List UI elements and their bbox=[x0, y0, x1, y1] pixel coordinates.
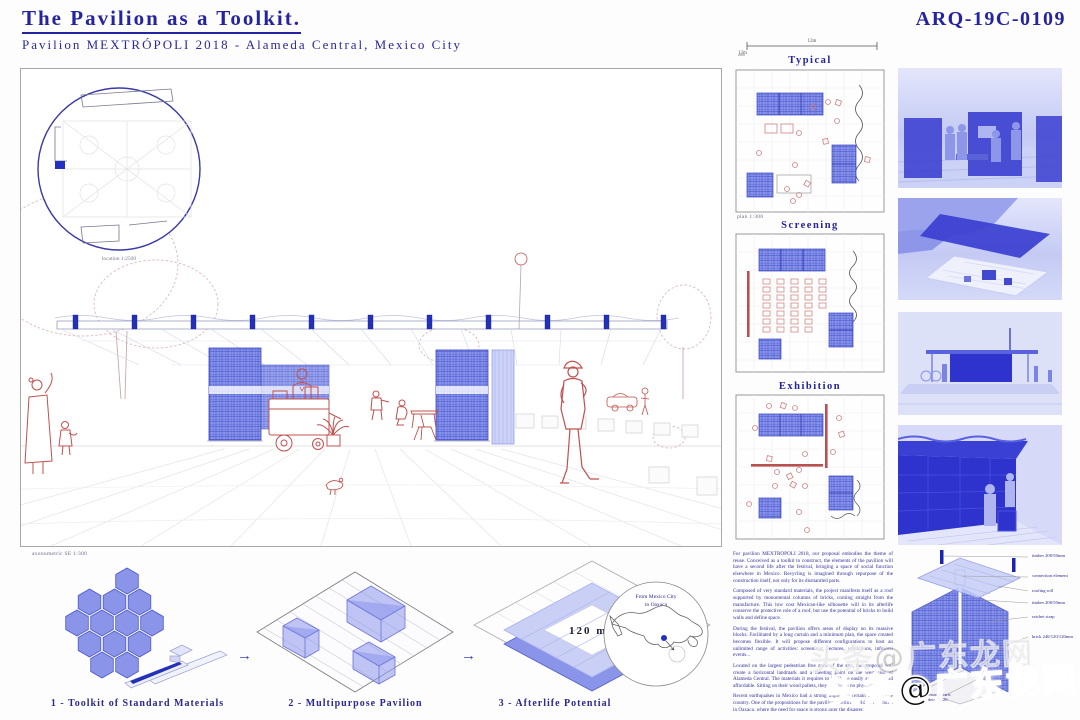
plan-title-screening: Screening bbox=[735, 220, 885, 231]
roof-beams bbox=[61, 329, 661, 365]
figure-child-center bbox=[371, 391, 389, 420]
location-inset: location 1:2500 bbox=[38, 88, 200, 262]
map-caption-line1: From Mexico City bbox=[636, 594, 677, 600]
folding-chair-table bbox=[411, 411, 438, 440]
figure-child-left bbox=[59, 422, 77, 456]
arrow-right-icon-1: → bbox=[237, 648, 252, 665]
competition-board: The Pavilion as a Toolkit. Pavilion MEXT… bbox=[0, 0, 1080, 720]
project-code: ARQ-19C-0109 bbox=[916, 8, 1066, 31]
mexico-city-dot bbox=[661, 635, 667, 641]
detail-label-brick: brick 240/120/120mm bbox=[1032, 634, 1078, 639]
pavilion-location-marker bbox=[55, 161, 65, 169]
detail-label-connection: connection element bbox=[1032, 573, 1078, 578]
figure-woman-left bbox=[25, 373, 52, 474]
scale-label-h: 12m bbox=[808, 39, 817, 44]
description-paragraph: Composed of very standard materials, the… bbox=[733, 588, 893, 621]
small-cube bbox=[170, 645, 192, 656]
detail-label-timber-1: timber 200/50mm bbox=[1032, 553, 1078, 558]
background-benches bbox=[516, 414, 717, 495]
location-caption: location 1:2500 bbox=[102, 256, 137, 262]
car-sketch bbox=[607, 394, 637, 412]
diagram-toolkit bbox=[30, 565, 235, 690]
model-photo-2 bbox=[898, 198, 1062, 300]
roof-post-right bbox=[1012, 558, 1016, 572]
detail-label-strap: ratchet strap bbox=[1032, 614, 1078, 619]
brick-hexagons bbox=[66, 568, 164, 678]
exhibition-wall-v bbox=[825, 404, 828, 468]
figure-guard bbox=[560, 361, 599, 483]
description-paragraph: For pavilion MEXTRÓPOLI 2018, our propos… bbox=[733, 551, 893, 584]
step-label-1: 1 - Toolkit of Standard Materials bbox=[30, 698, 245, 709]
detail-label-timber-2: timber 200/50mm bbox=[1032, 600, 1078, 605]
step-label-2: 2 - Multipurpose Pavilion bbox=[253, 698, 458, 709]
exhibition-wall-h bbox=[751, 464, 823, 467]
brick-columns bbox=[207, 348, 514, 444]
page-subtitle: Pavilion MEXTRÓPOLI 2018 - Alameda Centr… bbox=[22, 37, 462, 53]
figures bbox=[25, 253, 649, 495]
model-photo-4 bbox=[898, 425, 1062, 545]
roof-post-left bbox=[940, 550, 944, 564]
model-photo-3 bbox=[898, 312, 1062, 415]
figure-child-crouching bbox=[396, 400, 407, 425]
figure-right-small bbox=[641, 388, 649, 415]
diagram-pavilion bbox=[253, 560, 458, 695]
screen-line bbox=[747, 271, 750, 337]
page-title: The Pavilion as a Toolkit. bbox=[22, 6, 301, 34]
step-label-3: 3 - Afterlife Potential bbox=[460, 698, 650, 709]
plan-typical bbox=[735, 69, 885, 213]
mexico-map-inset: From Mexico City to Oaxaca bbox=[600, 578, 712, 690]
pavilion-roof bbox=[55, 315, 679, 365]
detail-label-roofing: roofing roll bbox=[1032, 588, 1078, 593]
pavement-lines bbox=[21, 446, 721, 546]
perspective-drawing: location 1:2500 bbox=[21, 69, 721, 546]
plan-exhibition bbox=[735, 394, 885, 540]
timber-plank bbox=[148, 651, 227, 684]
plan-screening bbox=[735, 233, 885, 373]
curtain bbox=[492, 350, 514, 444]
plan-title-exhibition: Exhibition bbox=[735, 381, 885, 392]
axonometric-caption: axonometric SE 1:300 bbox=[32, 551, 87, 557]
plan-title-typical: Typical bbox=[735, 55, 885, 66]
model-photo-1 bbox=[898, 68, 1062, 188]
perspective-panel: location 1:2500 bbox=[20, 68, 722, 547]
